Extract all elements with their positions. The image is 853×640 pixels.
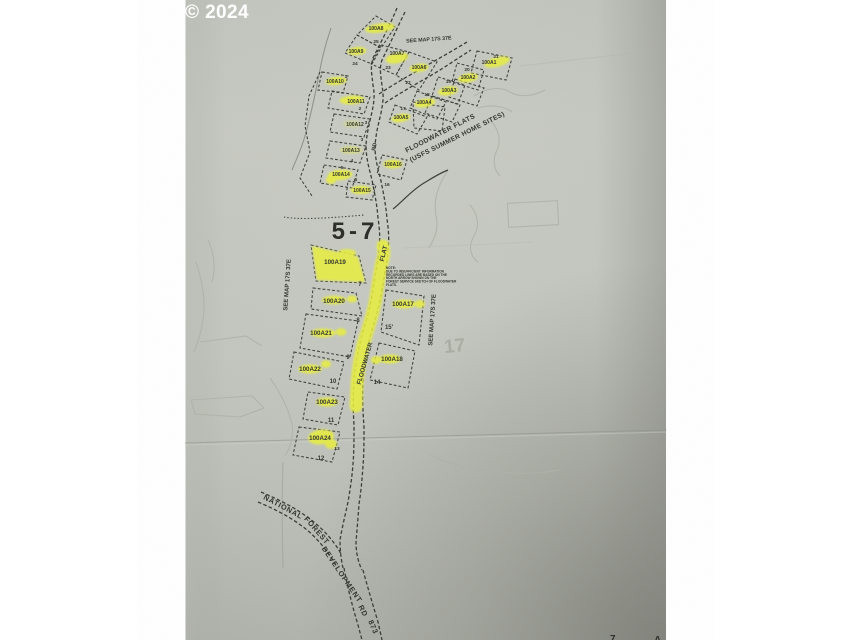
svg-text:12: 12	[318, 456, 325, 462]
svg-text:20: 20	[464, 67, 470, 73]
svg-text:10: 10	[330, 379, 337, 385]
svg-text:100A23: 100A23	[316, 399, 338, 406]
svg-text:5-7: 5-7	[332, 218, 379, 245]
svg-text:1: 1	[345, 74, 348, 80]
svg-text:4: 4	[351, 158, 354, 164]
svg-text:A: A	[654, 635, 661, 640]
svg-text:100A3: 100A3	[442, 88, 457, 94]
svg-text:19': 19'	[446, 79, 452, 85]
svg-text:2: 2	[359, 106, 362, 112]
svg-text:6: 6	[355, 177, 358, 183]
svg-text:100A12: 100A12	[346, 122, 364, 128]
svg-text:100A6: 100A6	[412, 65, 427, 71]
svg-text:100A15: 100A15	[353, 188, 371, 194]
svg-text:100A17: 100A17	[392, 301, 414, 308]
svg-text:13: 13	[334, 446, 340, 452]
svg-text:3: 3	[361, 137, 364, 143]
svg-text:7: 7	[610, 634, 616, 640]
svg-text:100A1: 100A1	[482, 60, 497, 66]
svg-text:3: 3	[365, 120, 368, 126]
svg-text:100A13: 100A13	[342, 148, 360, 154]
svg-text:24: 24	[352, 61, 358, 67]
svg-text:25: 25	[373, 39, 379, 45]
svg-text:100A2: 100A2	[461, 75, 476, 81]
svg-text:100A22: 100A22	[299, 366, 321, 373]
svg-text:100A14: 100A14	[332, 172, 350, 178]
svg-text:100A9: 100A9	[349, 49, 364, 55]
svg-text:100A16: 100A16	[384, 162, 402, 168]
svg-text:17: 17	[400, 106, 406, 112]
svg-text:100A7: 100A7	[390, 51, 405, 57]
svg-text:23: 23	[385, 65, 391, 71]
svg-text:FLATS.: FLATS.	[386, 283, 397, 287]
svg-text:100A5: 100A5	[394, 115, 409, 121]
svg-text:100A11: 100A11	[347, 99, 364, 105]
svg-text:100A4: 100A4	[417, 100, 432, 106]
svg-text:14: 14	[374, 380, 381, 386]
svg-text:100A21: 100A21	[310, 330, 332, 337]
svg-text:15': 15'	[385, 325, 394, 331]
svg-text:22: 22	[405, 80, 411, 86]
svg-text:16: 16	[384, 182, 390, 188]
svg-text:17: 17	[443, 335, 466, 358]
svg-text:11: 11	[328, 418, 335, 424]
svg-text:100A19: 100A19	[324, 259, 346, 266]
svg-text:© 2024: © 2024	[185, 2, 249, 23]
svg-text:18: 18	[424, 92, 430, 98]
svg-text:.: .	[634, 636, 637, 640]
svg-text:100A10: 100A10	[326, 79, 344, 85]
svg-text:100A24: 100A24	[309, 435, 331, 442]
svg-text:100A8: 100A8	[369, 26, 384, 32]
svg-text:21: 21	[493, 54, 499, 60]
svg-text:100A18: 100A18	[381, 356, 403, 363]
svg-text:100A20: 100A20	[323, 298, 345, 305]
svg-text:5: 5	[341, 165, 344, 171]
